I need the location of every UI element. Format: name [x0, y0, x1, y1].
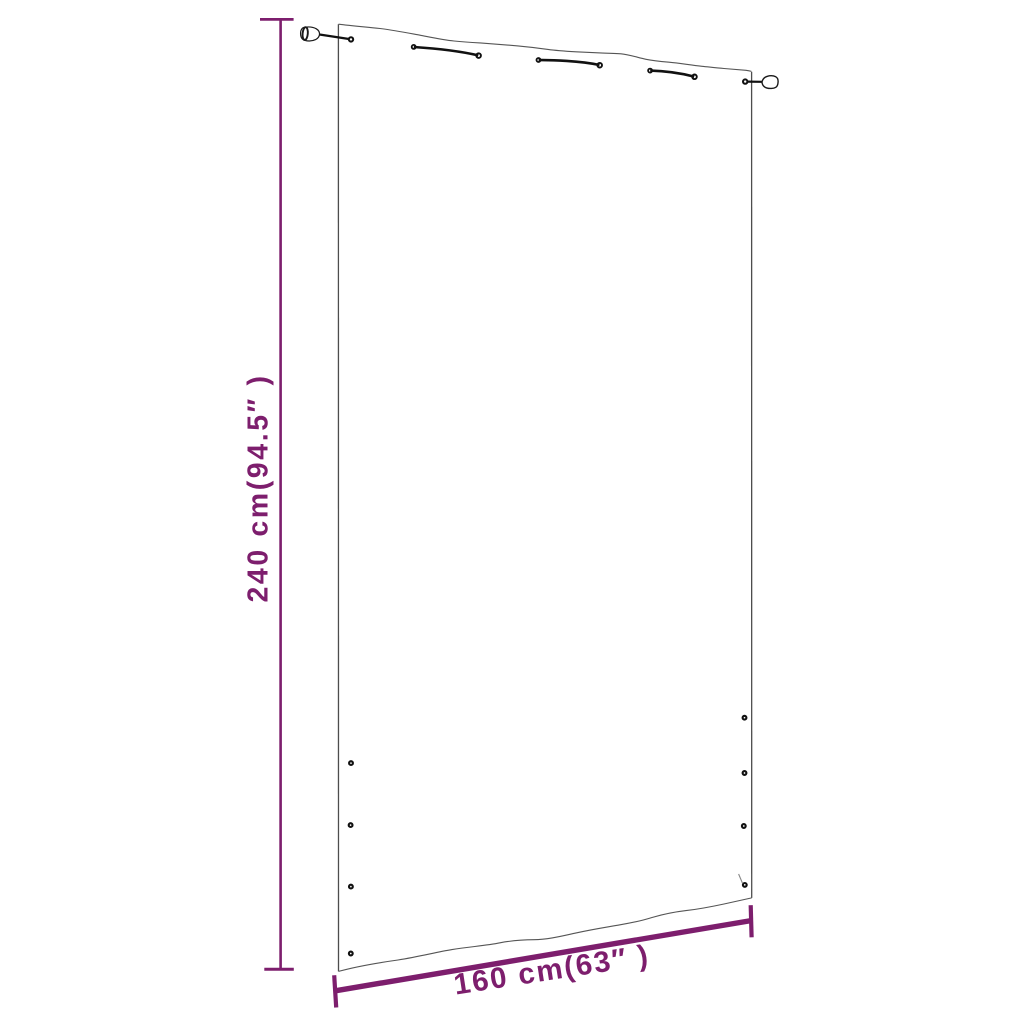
svg-text:240 cm(94.5″ ): 240 cm(94.5″ )	[243, 373, 275, 602]
